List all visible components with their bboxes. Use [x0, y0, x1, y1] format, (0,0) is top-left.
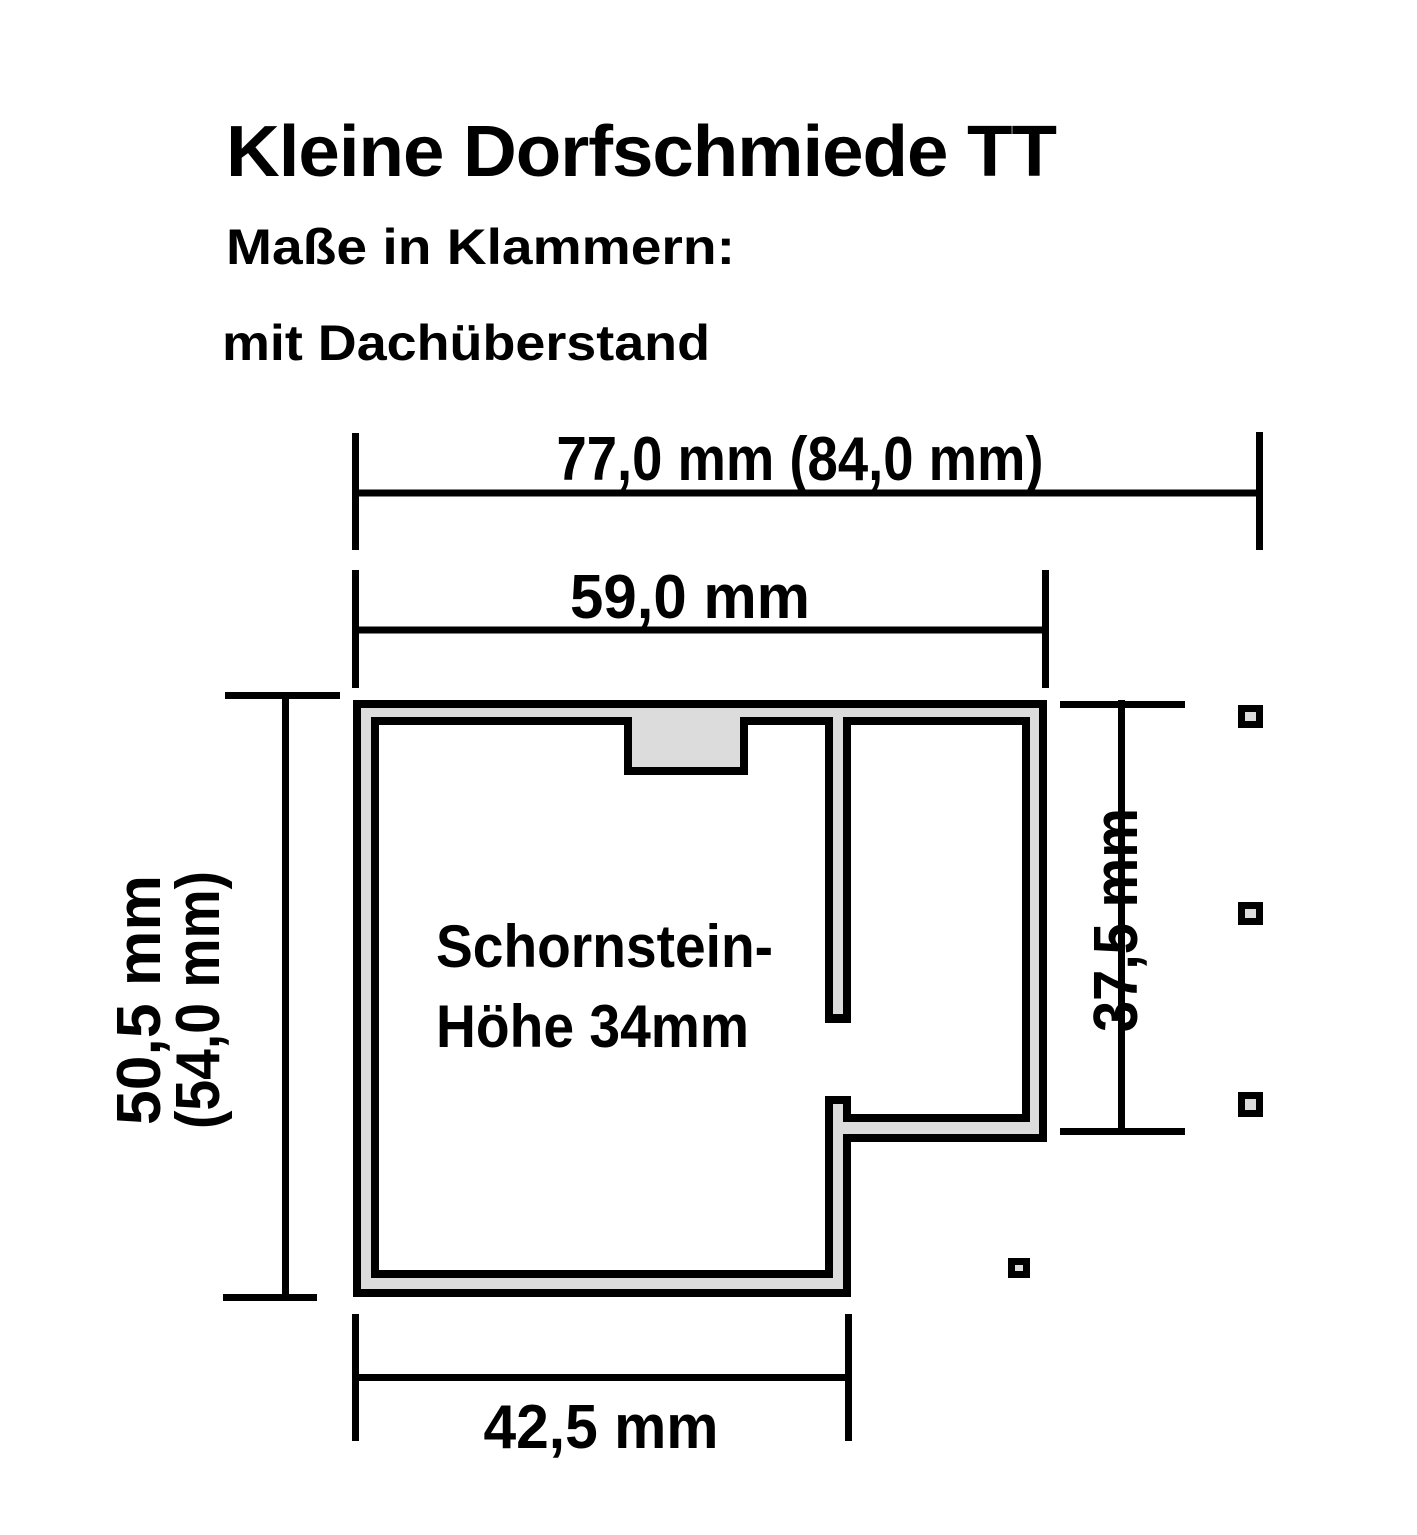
right-room-interior: [851, 725, 1022, 1114]
drawing-page: Kleine Dorfschmiede TT Maße in Klammern:…: [0, 0, 1417, 1535]
partition-wall-upper-cap: [825, 1014, 851, 1023]
dimension-top-outer-label: 77,0 mm (84,0 mm): [557, 425, 1044, 494]
alignment-square-lower: [1242, 1096, 1260, 1114]
chimney-note-line-2: Höhe 34mm: [436, 993, 749, 1060]
chimney-note-line-1: Schornstein-: [436, 913, 773, 980]
door-opening: [825, 1023, 851, 1096]
alignment-square-top: [1242, 709, 1260, 725]
dimension-left-parenthesized-label: (54,0 mm): [164, 871, 233, 1129]
alignment-square-bottom: [1012, 1262, 1027, 1275]
alignment-square-middle: [1242, 906, 1260, 922]
subtitle-line-1: Maße in Klammern:: [226, 219, 735, 275]
dimension-top-inner-label: 59,0 mm: [570, 563, 810, 632]
dimension-left: [223, 693, 340, 1299]
subtitle-line-2: mit Dachüberstand: [222, 315, 710, 371]
dimension-right-label: 37,5 mm: [1082, 808, 1151, 1032]
floorplan-diagram: Kleine Dorfschmiede TT Maße in Klammern:…: [0, 0, 1417, 1535]
page-title: Kleine Dorfschmiede TT: [226, 112, 1057, 192]
partition-wall-lower-cap: [825, 1096, 851, 1104]
dimension-bottom-label: 42,5 mm: [484, 1393, 719, 1462]
